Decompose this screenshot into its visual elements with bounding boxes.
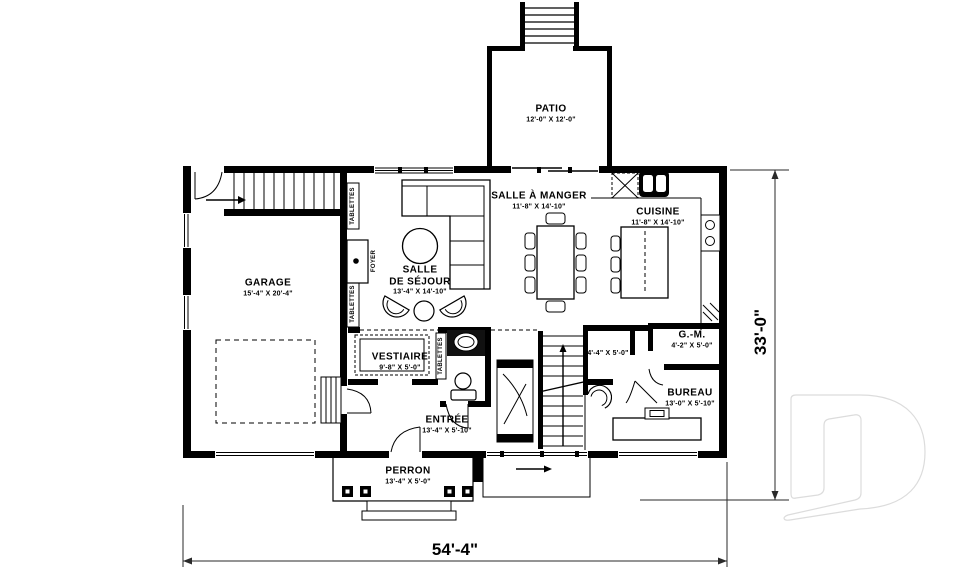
office-desk (613, 408, 701, 440)
entry-direction-arrow (544, 466, 552, 473)
perron-steps (362, 501, 456, 520)
dining-table (525, 213, 586, 312)
side-table (414, 301, 434, 321)
overall-height-dimension: 33'-0" (751, 309, 771, 355)
garage-stairs-direction-arrow (206, 196, 246, 204)
room-label-bureau: BUREAU 13'-0" X 5'-10" (665, 387, 715, 407)
room-label-closet: 4'-4" X 5'-0" (587, 349, 628, 357)
garage-entry-steps (321, 377, 341, 423)
annotation-tablettes-2: TABLETTES (350, 285, 356, 323)
room-label-garde-manger: G.-M. 4'-2" X 5'-0" (671, 329, 712, 349)
room-label-garage: GARAGE 15'-4" X 20'-4" (243, 277, 293, 297)
room-label-salle-de-sejour: SALLE DE SÉJOUR 13'-4" X 14'-10" (389, 265, 450, 296)
room-label-salle-a-manger: SALLE À MANGER 11'-8" X 14'-10" (491, 190, 587, 210)
toilet-icon (455, 373, 471, 389)
room-label-cuisine: CUISINE 11'-8" X 14'-10" (631, 206, 684, 226)
kitchen-island (611, 227, 668, 298)
annotation-tablettes-1: TABLETTES (350, 187, 356, 225)
fireplace (347, 240, 368, 283)
floor-plan-canvas: PATIO 12'-0" X 12'-0" SALLE À MANGER 11'… (0, 0, 960, 569)
annotation-foyer: FOYER (371, 250, 377, 272)
car-parking-space (216, 340, 315, 423)
room-label-entree: ENTRÉE 13'-4" X 5'-10" (422, 414, 472, 434)
entry-bench (497, 360, 533, 442)
kitchen-range-icon (701, 215, 720, 251)
room-label-patio: PATIO 12'-0" X 12'-0" (526, 103, 576, 123)
stool-icon (611, 278, 620, 293)
porch-columns (342, 486, 473, 497)
watermark-d-logo (784, 395, 925, 520)
room-label-vestiaire: VESTIAIRE 9'-8" X 5'-0" (372, 351, 428, 371)
annotation-tablettes-3: TABLETTES (438, 337, 444, 375)
patio-steps (525, 8, 574, 43)
patio-structure (487, 2, 612, 168)
central-stairs-direction-arrow (560, 344, 567, 446)
overall-width-dimension: 54'-4" (432, 540, 478, 560)
floor-plan-drawing (0, 0, 960, 569)
garage-stairs (234, 173, 334, 209)
kitchen-cooktop (612, 173, 638, 198)
kitchen-sink-icon (639, 171, 669, 197)
armchair-left (378, 296, 409, 322)
round-ottoman (403, 229, 438, 264)
armchair-right (440, 296, 471, 322)
powder-room (447, 330, 485, 400)
front-stoop (483, 458, 590, 497)
stool-icon (611, 236, 620, 251)
fireplace-flue-icon (353, 258, 359, 264)
stool-icon (611, 257, 620, 272)
room-label-perron: PERRON 13'-4" X 5'-0" (385, 465, 430, 485)
